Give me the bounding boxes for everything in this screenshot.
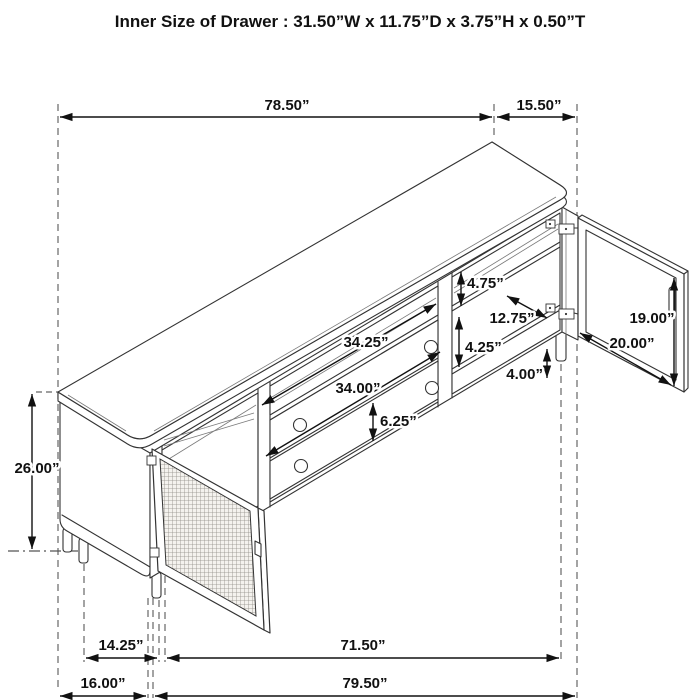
cane-door-hinge-top: [147, 456, 156, 465]
dim-top-depth-label: 15.50”: [516, 97, 561, 114]
drawer-top-knob-right[interactable]: [425, 341, 438, 354]
dim-door-height-label: 19.00”: [629, 310, 674, 327]
cane-door-hinge-bottom: [150, 548, 159, 557]
cane-door-handle[interactable]: [255, 541, 261, 557]
dim-leg-height-label: 4.00”: [506, 366, 543, 383]
dim-overall-height-label: 26.00”: [14, 460, 59, 477]
dim-drawer-height-label: 6.25”: [380, 413, 417, 430]
dim-lower-gap-label: 4.25”: [465, 339, 502, 356]
dim-side-depth-label: 16.00”: [80, 675, 125, 692]
technical-drawing-page: 78.50” 15.50” 26.00” 4.75” 12.75” 34.25”…: [0, 0, 700, 700]
furniture-dimension-diagram: 78.50” 15.50” 26.00” 4.75” 12.75” 34.25”…: [0, 0, 700, 700]
dim-opening-width-label: 34.25”: [343, 334, 388, 351]
dim-base-front-span-label: 71.50”: [340, 637, 385, 654]
dim-base-inset-left-label: 14.25”: [98, 637, 143, 654]
leg-front-right: [556, 332, 566, 361]
dim-drawer-width-label: 34.00”: [335, 380, 380, 397]
dim-overall-width-label: 79.50”: [342, 675, 387, 692]
drawer-bottom-knob-right[interactable]: [426, 382, 439, 395]
dim-upper-gap-label: 4.75”: [467, 275, 504, 292]
drawing-title: Inner Size of Drawer : 31.50”W x 11.75”D…: [115, 12, 586, 31]
dim-shelf-depth-label: 12.75”: [489, 310, 534, 327]
drawer-bottom-knob-left[interactable]: [295, 460, 308, 473]
dim-door-width-label: 20.00”: [609, 335, 654, 352]
dim-top-length-label: 78.50”: [264, 97, 309, 114]
drawer-top-knob-left[interactable]: [294, 419, 307, 432]
